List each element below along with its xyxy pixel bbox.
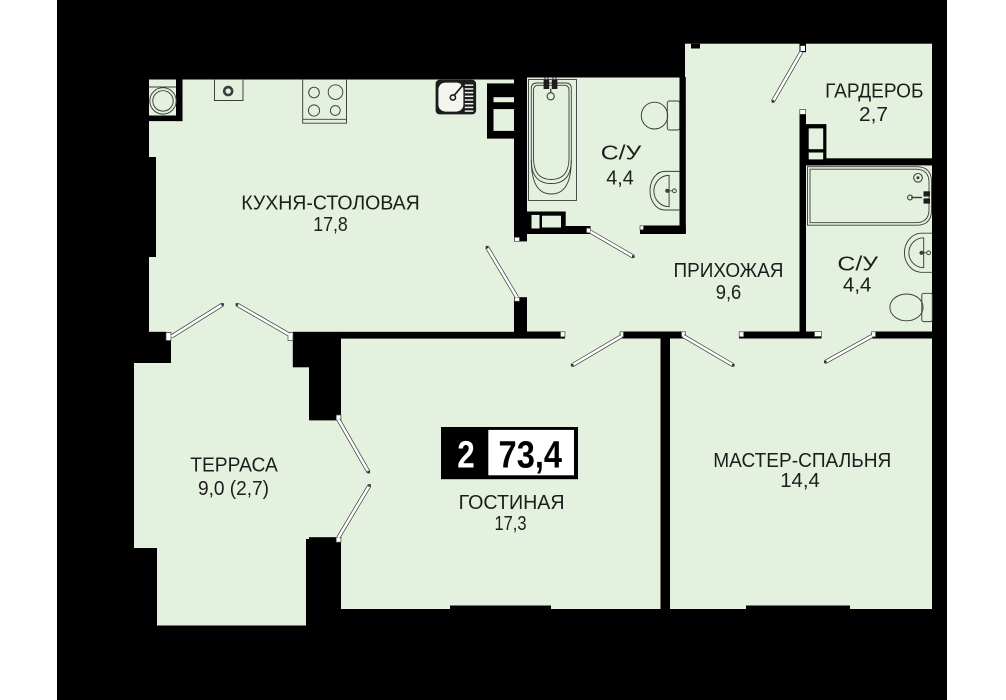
svg-text:9,0 (2,7): 9,0 (2,7) bbox=[198, 478, 269, 500]
svg-text:МАСТЕР-СПАЛЬНЯ: МАСТЕР-СПАЛЬНЯ bbox=[713, 450, 891, 472]
svg-text:4,4: 4,4 bbox=[606, 167, 634, 189]
svg-text:ПРИХОЖАЯ: ПРИХОЖАЯ bbox=[674, 260, 784, 282]
svg-text:ТЕРРАСА: ТЕРРАСА bbox=[190, 454, 278, 476]
svg-text:14,4: 14,4 bbox=[780, 470, 820, 492]
svg-text:17,8: 17,8 bbox=[313, 214, 348, 236]
svg-text:С/У: С/У bbox=[601, 142, 642, 164]
svg-text:С/У: С/У bbox=[837, 254, 878, 276]
svg-text:ГАРДЕРОБ: ГАРДЕРОБ bbox=[825, 80, 923, 102]
svg-text:КУХНЯ-СТОЛОВАЯ: КУХНЯ-СТОЛОВАЯ bbox=[241, 192, 420, 214]
svg-text:ГОСТИНАЯ: ГОСТИНАЯ bbox=[459, 492, 565, 514]
svg-text:4,4: 4,4 bbox=[843, 275, 872, 297]
svg-text:9,6: 9,6 bbox=[716, 282, 742, 304]
svg-text:73,4: 73,4 bbox=[499, 434, 563, 476]
svg-text:2,7: 2,7 bbox=[859, 104, 888, 126]
svg-text:2: 2 bbox=[457, 434, 475, 476]
svg-text:17,3: 17,3 bbox=[495, 513, 527, 535]
